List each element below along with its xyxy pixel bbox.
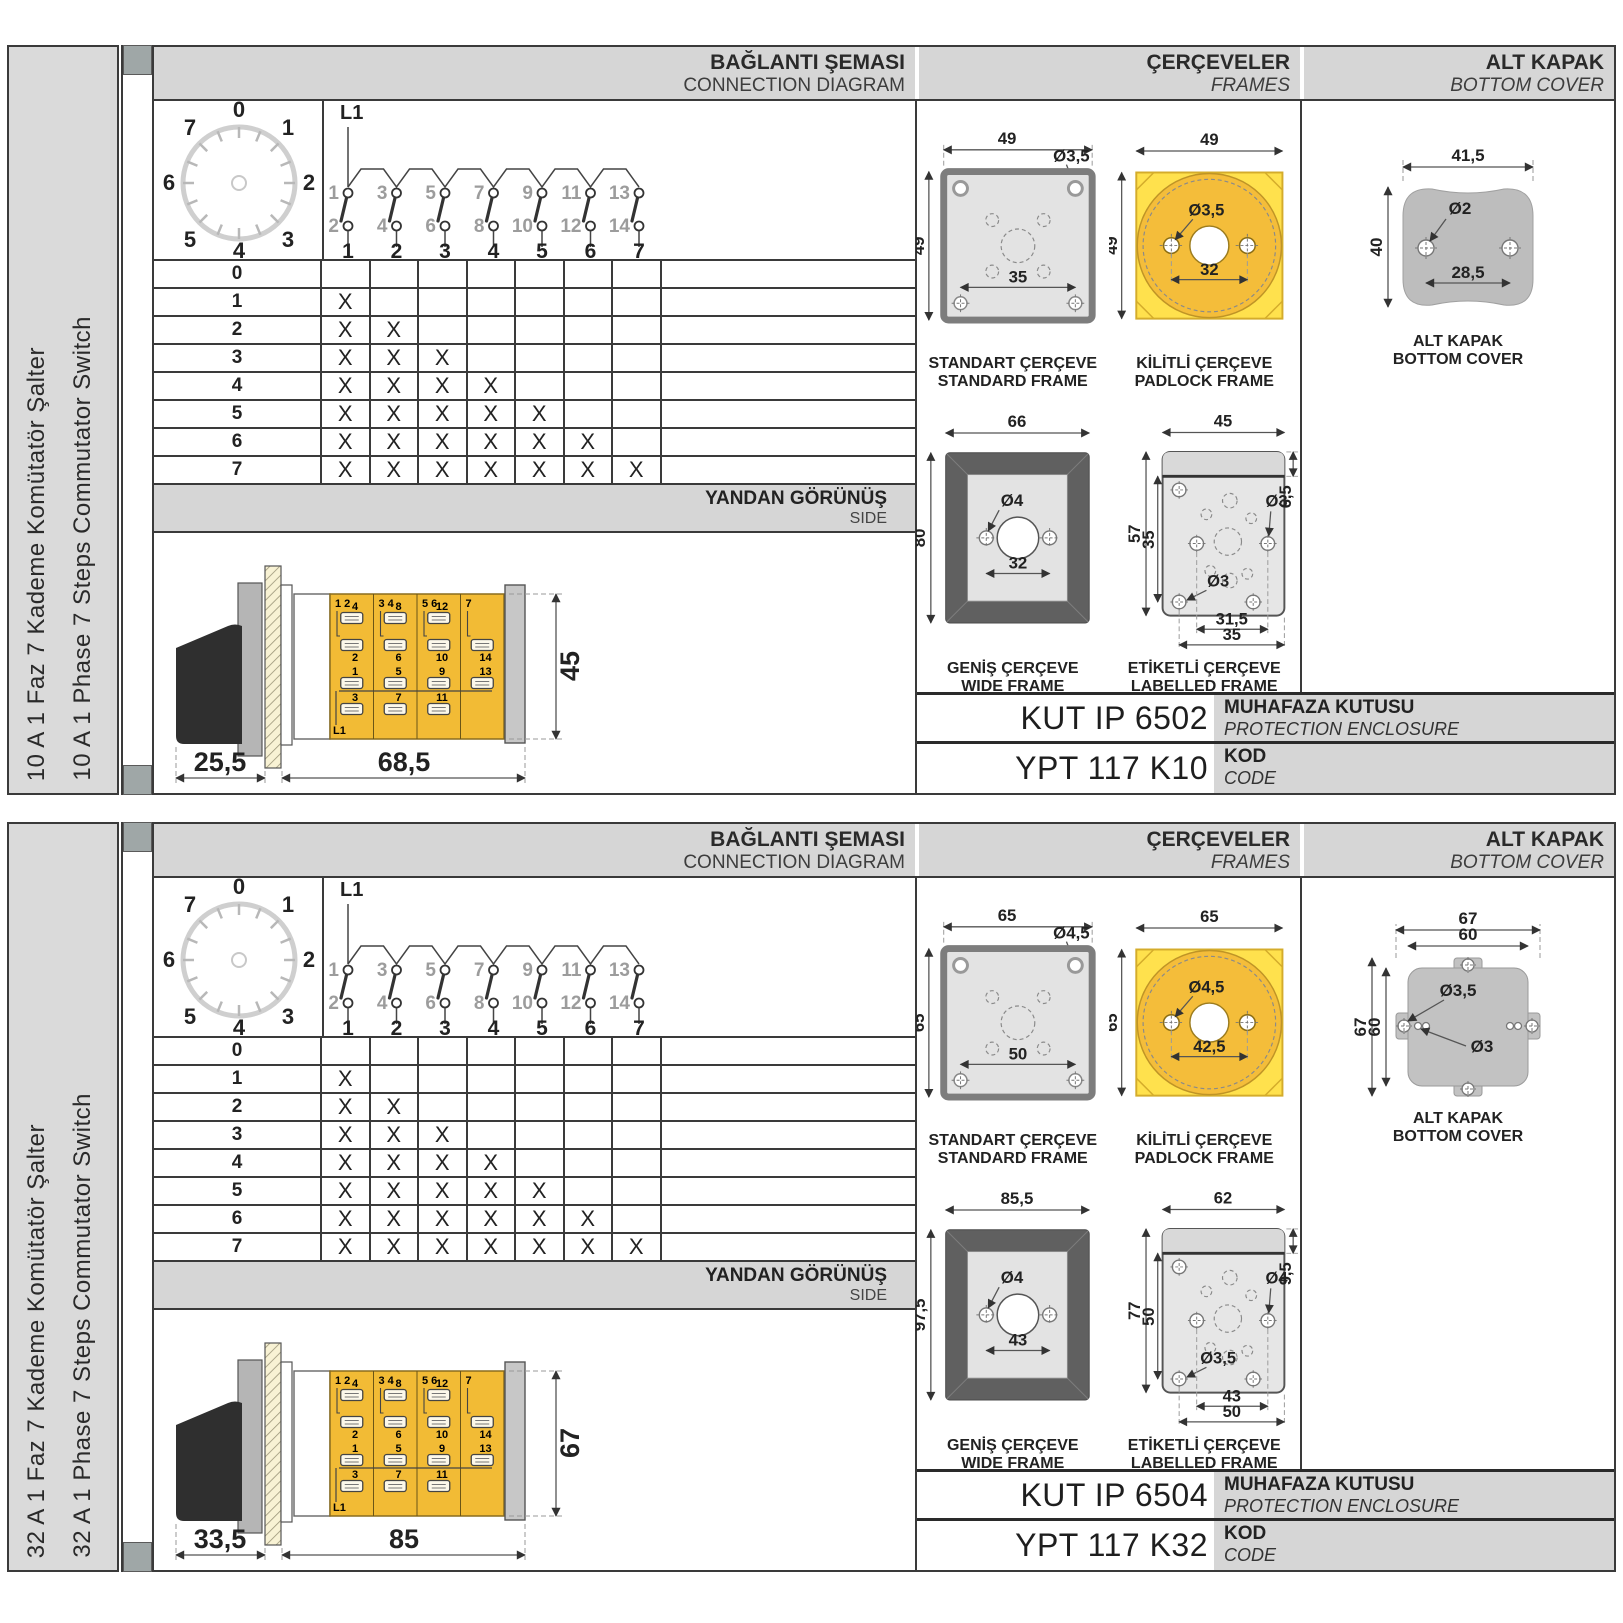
dial-label-5: 5 [184,1004,196,1029]
shaft-housing [294,594,330,739]
cover-caption-en: BOTTOM COVER [1393,351,1523,369]
segment-terminal-label: 7 [395,692,401,704]
segment-terminal-label: 3 [352,692,358,704]
mark-cell [419,1066,468,1092]
mark-cell: X [371,1206,420,1232]
enclosure-code-value: KUT IP 6502 [917,695,1214,741]
header-frames-tr: ÇERÇEVELER [919,51,1290,75]
padlock-frame-figure: 65 65 [1109,880,1301,1169]
product-name-turkish: 10 A 1 Faz 7 Kademe Komütatör Şalter [23,347,51,781]
dim-cover-h2: 60 [1365,1018,1384,1037]
side-view-banner: YANDAN GÖRÜNÜŞ SIDE [154,485,915,533]
dim-cover-height: 40 [1367,238,1386,257]
mark-cell [516,1122,565,1148]
mark-cell: X [468,1150,517,1176]
contact-terminals [344,189,644,231]
segment-terminal-label: 10 [436,1429,448,1441]
mark-cell: X [468,373,517,399]
rotary-dial-cell: 0 1 2 3 4 5 6 7 [154,101,324,259]
mark-cell: X [371,1150,420,1176]
mark-cell [613,1094,662,1120]
column-4: 4 [488,1017,500,1036]
segment-terminal-label: 5 [395,1443,401,1455]
dim-cover-width: 41,5 [1451,146,1484,165]
cover-caption: ALT KAPAK BOTTOM COVER [1393,333,1523,370]
mark-cell [419,261,468,287]
dim-frame-width: 49 [1200,130,1218,149]
mark-cell: X [371,457,420,483]
table-row: 5 X X X X X [154,401,915,429]
dim-hole-a: Ø4 [1266,1268,1289,1287]
datasheet-panel: BAĞLANTI ŞEMASI CONNECTION DIAGRAM ÇERÇE… [152,45,1616,795]
mark-cell: X [468,457,517,483]
position-label: 5 [154,401,322,427]
mark-cell [468,1094,517,1120]
position-label: 2 [154,1094,322,1120]
mark-cell [371,1038,420,1064]
segment-terminal-label: 9 [439,1443,445,1455]
filler-cell [662,1206,916,1232]
table-row: 6 X X X X X X [154,429,915,457]
shaft-housing [294,1371,330,1516]
position-label: 4 [154,373,322,399]
terminal-1: 1 [328,183,339,204]
rotary-dial-drawing: 0 1 2 3 4 5 6 7 [154,878,322,1036]
table-row: 2 X X [154,1094,915,1122]
dim-frame-width: 45 [1214,411,1232,430]
codes-block: KUT IP 6502 MUHAFAZA KUTUSU PROTECTION E… [917,692,1614,793]
product-section: 10 A 1 Faz 7 Kademe Komütatör Şalter 10 … [0,45,1623,795]
dim-hole: Ø4 [1001,1268,1024,1287]
mark-cell [565,373,614,399]
column-1: 1 [342,1017,354,1036]
connection-diagram-column: 0 1 2 3 4 5 6 7 [154,878,915,1570]
standard-frame-figure: 65 Ø4,5 65 [917,880,1109,1169]
mark-cell: X [371,1178,420,1204]
header-frames-en: FRAMES [919,852,1290,874]
dial-center [232,176,246,190]
cover-caption-tr: ALT KAPAK [1393,333,1523,351]
segment-terminal-label: 12 [436,601,448,613]
table-row: 2 X X [154,317,915,345]
terminal-4: 4 [377,993,388,1014]
mark-cell [371,1066,420,1092]
mark-cell [613,289,662,315]
dim-frame-width: 65 [1200,907,1218,926]
mark-cell [516,261,565,287]
cover-caption: ALT KAPAK BOTTOM COVER [1393,1110,1523,1147]
dim-hole: Ø4,5 [1189,977,1225,996]
filler-cell [662,1066,916,1092]
terminal-13: 13 [609,960,630,981]
side-view-banner: YANDAN GÖRÜNÜŞ SIDE [154,1262,915,1310]
mark-cell: X [371,345,420,371]
frame-caption: KİLİTLİ ÇERÇEVE PADLOCK FRAME [1135,355,1274,392]
mark-cell [613,345,662,371]
contacts-cell: L1 [324,101,915,259]
dim-hole-b: Ø3,5 [1200,1348,1236,1367]
segment-terminal-label: 1 [352,1443,358,1455]
column-numbers: 1 2 3 4 5 6 7 [342,1017,645,1036]
product-section: 32 A 1 Faz 7 Kademe Komütatör Şalter 32 … [0,822,1623,1572]
segment-terminal-label: 14 [479,1429,492,1441]
binder-mark-top [123,822,152,852]
dim-frame-height: 97,5 [916,1298,929,1331]
dim-frame-width: 65 [998,906,1017,925]
filler-cell [662,345,916,371]
dim-frame-height: 65 [916,1013,928,1032]
side-view-area: 1 2 4 2 1 3 L1 3 4 [154,1310,915,1570]
frame-name-tr: KİLİTLİ ÇERÇEVE [1135,1132,1274,1150]
mark-cell: X [322,1206,371,1232]
terminal-14: 14 [609,216,631,237]
segment-terminal-label: 7 [395,1469,401,1481]
code-row: YPT 117 K10 KOD CODE [917,744,1614,793]
terminal-11: 11 [561,960,582,981]
header-connection-diagram-en: CONNECTION DIAGRAM [154,75,905,97]
terminal-12: 12 [560,216,581,237]
mark-cell [565,345,614,371]
label-strip [1163,452,1285,475]
table-row: 4 X X X X [154,373,915,401]
dim-frame-height: 49 [916,236,928,255]
mark-cell: X [419,1234,468,1260]
terminal-8: 8 [474,993,485,1014]
table-row: 3 X X X [154,345,915,373]
dim-front-depth: 33,5 [194,1524,247,1554]
position-label: 0 [154,261,322,287]
table-row: 7 X X X X X X X [154,457,915,485]
header-bottom-cover-en: BOTTOM COVER [1304,75,1604,97]
frame-caption: STANDART ÇERÇEVE STANDARD FRAME [928,1132,1097,1169]
switch-knob [176,625,242,745]
filler-cell [662,1038,916,1064]
panel-hatched [265,566,281,768]
bottom-cover-column: 67 60 67 60 [1300,878,1614,1469]
table-row: 7 X X X X X X X [154,1234,915,1262]
mark-cell: X [565,1206,614,1232]
terminal-10: 10 [512,216,533,237]
filler-cell [662,373,916,399]
terminal-numbers-top: 1 3 5 7 9 11 13 [328,183,630,204]
mark-cell: X [468,1206,517,1232]
padlock-frame-drawing: 49 49 [1109,103,1299,355]
wide-frame-drawing: 66 80 [916,392,1109,660]
dim-hole-spacing: 50 [1009,1044,1028,1063]
mark-cell: X [322,345,371,371]
segment-head: 7 [466,598,472,610]
filler-cell [662,1178,916,1204]
column-1: 1 [342,240,354,259]
segment-terminal-label: 9 [439,666,445,678]
mark-cell: X [322,1234,371,1260]
mark-cell [516,317,565,343]
code-label: KOD CODE [1214,1521,1614,1570]
cover-tabs-figure: 67 60 67 60 [1308,888,1608,1110]
header-frames-en: FRAMES [919,75,1290,97]
mark-cell [565,1038,614,1064]
table-row: 0 [154,1038,915,1066]
shaft-hole [997,517,1039,559]
code-label-en: CODE [1224,1545,1614,1566]
bottom-cover-column: 41,5 40 [1300,101,1614,692]
side-view-title-en: SIDE [154,510,887,528]
frame-name-tr: ETİKETLİ ÇERÇEVE [1128,1437,1281,1455]
mark-cell: X [516,1178,565,1204]
terminal-4: 4 [377,216,388,237]
dial-label-5: 5 [184,227,196,252]
mark-cell: X [516,1206,565,1232]
mark-cell: X [322,1094,371,1120]
side-view-drawing: 1 2 4 2 1 3 L1 3 4 [154,533,913,792]
filler-cell [662,1094,916,1120]
segment-terminal-label: 2 [352,652,358,664]
header-connection-diagram: BAĞLANTI ŞEMASI CONNECTION DIAGRAM [154,824,915,876]
mark-cell: X [419,373,468,399]
table-row: 6 X X X X X X [154,1206,915,1234]
dial-label-6: 6 [163,170,175,195]
mark-cell: X [468,1234,517,1260]
dial-label-4: 4 [233,1015,246,1036]
mark-cell: X [419,1178,468,1204]
frame-name-en: PADLOCK FRAME [1135,1150,1274,1168]
enclosure-code-value: KUT IP 6504 [917,1472,1214,1518]
product-code-value: YPT 117 K32 [917,1521,1214,1570]
codes-block: KUT IP 6504 MUHAFAZA KUTUSU PROTECTION E… [917,1469,1614,1570]
binder-mark-bottom [123,765,152,795]
dim-bottom-b: 50 [1223,1402,1241,1421]
catalog-page: 10 A 1 Faz 7 Kademe Komütatör Şalter 10 … [0,0,1623,1623]
segment-terminal-label: 6 [395,1429,401,1441]
cover-caption-en: BOTTOM COVER [1393,1128,1523,1146]
mark-cell [419,289,468,315]
column-numbers: 1 2 3 4 5 6 7 [342,240,645,259]
cover-blob-figure: 41,5 40 [1308,111,1608,333]
mark-cell: X [419,345,468,371]
segment-terminal-label: 4 [352,1378,359,1390]
bridge-links [348,946,639,964]
dim-bottom-b: 35 [1223,625,1241,644]
filler-cell [662,289,916,315]
mark-cell: X [565,429,614,455]
table-row: 4 X X X X [154,1150,915,1178]
terminal-3: 3 [377,183,388,204]
mark-cell: X [322,429,371,455]
bottom-cover-drawing: 67 60 67 60 [1308,888,1608,1110]
column-6: 6 [585,1017,597,1036]
dim-hole: Ø4 [1001,491,1024,510]
mark-cell [468,1066,517,1092]
mark-cell: X [371,1234,420,1260]
segment-terminal-label: 12 [436,1378,448,1390]
mark-cell [516,289,565,315]
segment-terminal-label: 10 [436,652,448,664]
filler-cell [662,317,916,343]
mark-cell: X [419,1206,468,1232]
frame-name-tr: GENİŞ ÇERÇEVE [947,1437,1079,1455]
segment-head: 7 [466,1375,472,1387]
mark-cell: X [322,457,371,483]
filler-cell [662,429,916,455]
mark-cell: X [322,1178,371,1204]
padlock-frame-figure: 49 49 [1109,103,1301,392]
dial-center [232,953,246,967]
product-code-value: YPT 117 K10 [917,744,1214,793]
header-bottom-cover-tr: ALT KAPAK [1304,51,1604,75]
mark-cell [468,261,517,287]
dim-frame-width: 62 [1214,1188,1232,1207]
enclosure-label-tr: MUHAFAZA KUTUSU [1224,697,1614,719]
labelled-frame-figure: 62 9,5 77 [1109,1169,1301,1474]
header-bottom-cover: ALT KAPAK BOTTOM COVER [1300,47,1614,99]
segment-head: 3 4 [379,598,395,610]
terminal-12: 12 [560,993,581,1014]
frames-column: 49 Ø3,5 49 [917,101,1300,692]
column-7: 7 [633,240,645,259]
terminal-numbers-top: 1 3 5 7 9 11 13 [328,960,630,981]
segment-head: 1 2 [335,598,350,610]
header-frames: ÇERÇEVELER FRAMES [915,47,1300,99]
position-label: 7 [154,1234,322,1260]
position-label: 1 [154,1066,322,1092]
switching-table: 0 1 X [154,1038,915,1262]
table-row: 0 [154,261,915,289]
filler-cell [662,1122,916,1148]
filler-cell [662,1150,916,1176]
dim-cover-hole: Ø2 [1449,199,1472,218]
column-2: 2 [391,1017,403,1036]
dim-frame-width: 85,5 [1001,1189,1034,1208]
mark-cell [613,429,662,455]
mark-cell [371,289,420,315]
contact-schematic: L1 [324,878,913,1036]
column-5: 5 [536,240,548,259]
padlock-frame-drawing: 65 65 [1109,880,1299,1132]
mark-cell: X [419,429,468,455]
table-row: 3 X X X [154,1122,915,1150]
header-frames: ÇERÇEVELER FRAMES [915,824,1300,876]
connection-diagram-column: 0 1 2 3 4 5 6 7 [154,101,915,793]
contact-schematic: L1 [324,101,913,259]
sidebar-product-label: 10 A 1 Faz 7 Kademe Komütatör Şalter 10 … [7,45,119,795]
dim-inner-height: 35 [1139,530,1158,548]
mark-cell: X [371,429,420,455]
table-row: 1 X [154,289,915,317]
mark-cell: X [419,457,468,483]
mark-cell [516,345,565,371]
terminal-6: 6 [425,216,436,237]
segment-terminal-label: 13 [479,666,491,678]
mark-cell [613,1038,662,1064]
dim-front-depth: 25,5 [194,747,247,777]
mark-cell: X [322,317,371,343]
sidebar-product-label: 32 A 1 Faz 7 Kademe Komütatör Şalter 32 … [7,822,119,1572]
segment-head: 3 4 [379,1375,395,1387]
header-connection-diagram-tr: BAĞLANTI ŞEMASI [154,828,905,852]
end-cap [505,585,525,743]
mark-cell: X [516,429,565,455]
diagram-row: 0 1 2 3 4 5 6 7 [154,878,915,1038]
binder-strip [121,822,152,1572]
product-name-english: 10 A 1 Phase 7 Steps Commutator Switch [69,316,97,781]
datasheet-panel: BAĞLANTI ŞEMASI CONNECTION DIAGRAM ÇERÇE… [152,822,1616,1572]
segment-feed-label: L1 [333,725,346,737]
enclosure-label-en: PROTECTION ENCLOSURE [1224,1496,1614,1517]
frame-caption: KİLİTLİ ÇERÇEVE PADLOCK FRAME [1135,1132,1274,1169]
mark-cell [565,401,614,427]
dim-hole-a: Ø3 [1266,491,1288,510]
feed-terminal-label: L1 [340,879,363,901]
frames-column: 65 Ø4,5 65 [917,878,1300,1469]
terminal-9: 9 [522,960,533,981]
binder-strip [121,45,152,795]
bridge-links [348,169,639,187]
labelled-frame-drawing: 45 6,5 57 [1109,392,1299,660]
product-name-english: 32 A 1 Phase 7 Steps Commutator Switch [69,1093,97,1558]
mark-cell [516,1094,565,1120]
mark-cell: X [613,457,662,483]
enclosure-label-en: PROTECTION ENCLOSURE [1224,719,1614,740]
mark-cell [613,1122,662,1148]
mark-cell [419,317,468,343]
mark-cell [565,1066,614,1092]
dial-label-4: 4 [233,238,246,259]
mark-cell [613,1178,662,1204]
code-label: KOD CODE [1214,744,1614,793]
mark-cell [613,373,662,399]
frame-name-en: PADLOCK FRAME [1135,373,1274,391]
terminal-6: 6 [425,993,436,1014]
segment-terminal-label: 11 [436,1469,448,1481]
column-3: 3 [439,240,451,259]
column-5: 5 [536,1017,548,1036]
mark-cell: X [565,1234,614,1260]
enclosure-label-tr: MUHAFAZA KUTUSU [1224,1474,1614,1496]
mark-cell [565,261,614,287]
column-6: 6 [585,240,597,259]
dim-hole: Ø3,5 [1189,200,1225,219]
frame-name-tr: GENİŞ ÇERÇEVE [947,660,1079,678]
side-view-drawing: 1 2 4 2 1 3 L1 3 4 [154,1310,913,1569]
labelled-frame-figure: 45 6,5 57 [1109,392,1301,697]
segment-terminal-label: 2 [352,1429,358,1441]
mark-cell [613,261,662,287]
dim-hole-spacing: 32 [1009,553,1028,572]
terminal-3: 3 [377,960,388,981]
mark-cell [516,373,565,399]
switch-knob [176,1402,242,1522]
table-row: 5 X X X X X [154,1178,915,1206]
mark-cell: X [419,401,468,427]
frame-name-tr: STANDART ÇERÇEVE [928,1132,1097,1150]
dim-frame-height: 49 [1109,236,1121,254]
wide-frame-figure: 66 80 [917,392,1109,697]
dim-corner-hole: Ø3,5 [1053,147,1089,166]
dial-label-6: 6 [163,947,175,972]
segment-terminal-label: 11 [436,692,448,704]
position-label: 3 [154,1122,322,1148]
binder-mark-bottom [123,1542,152,1572]
position-label: 3 [154,345,322,371]
dial-label-1: 1 [282,115,294,140]
mark-cell [565,1178,614,1204]
terminal-14: 14 [609,993,631,1014]
spacer-plate [281,1362,292,1522]
side-view-title-tr: YANDAN GÖRÜNÜŞ [154,1265,887,1287]
dim-hole-spacing: 32 [1200,260,1218,279]
position-label: 5 [154,1178,322,1204]
mark-cell [613,401,662,427]
